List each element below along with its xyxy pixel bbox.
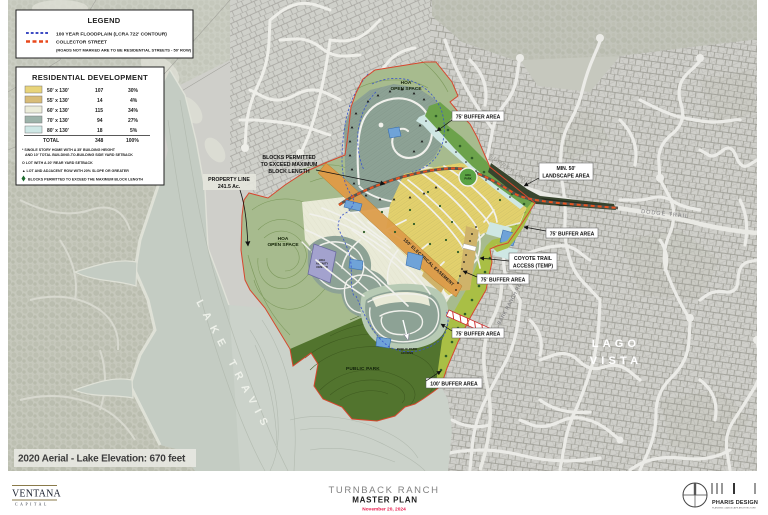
svg-text:PARK: PARK bbox=[464, 177, 471, 181]
svg-text:60' x 130': 60' x 130' bbox=[47, 108, 69, 114]
svg-text:PROPERTY LINE: PROPERTY LINE bbox=[208, 177, 250, 183]
svg-text:14: 14 bbox=[97, 98, 103, 104]
svg-text:LANDSCAPE AREA: LANDSCAPE AREA bbox=[542, 174, 590, 180]
svg-text:107: 107 bbox=[95, 88, 104, 94]
svg-text:AND 10' TOTAL BUILDING-TO-BUIL: AND 10' TOTAL BUILDING-TO-BUILDING SIDE … bbox=[25, 153, 133, 157]
svg-text:BLOCKS PERMITTED: BLOCKS PERMITTED bbox=[262, 155, 316, 161]
svg-text:PUBLIC PARK: PUBLIC PARK bbox=[346, 366, 380, 371]
svg-text:80' x 130': 80' x 130' bbox=[47, 128, 69, 134]
svg-text:TOTAL: TOTAL bbox=[43, 138, 59, 144]
svg-text:COYOTE TRAIL: COYOTE TRAIL bbox=[514, 256, 552, 262]
svg-text:55' x 130': 55' x 130' bbox=[47, 98, 69, 104]
svg-text:RESIDENTIAL DEVELOPMENT: RESIDENTIAL DEVELOPMENT bbox=[32, 73, 148, 82]
svg-text:ACCESS (TEMP): ACCESS (TEMP) bbox=[513, 264, 553, 270]
svg-text:LEGEND: LEGEND bbox=[87, 16, 120, 25]
svg-text:CAPITAL: CAPITAL bbox=[15, 503, 49, 507]
svg-text:4%: 4% bbox=[130, 98, 138, 104]
svg-text:75' BUFFER AREA: 75' BUFFER AREA bbox=[550, 231, 595, 237]
svg-text:2020 Aerial - Lake Elevation:: 2020 Aerial - Lake Elevation: 670 feet bbox=[18, 454, 186, 465]
svg-text:OPEN SPACE: OPEN SPACE bbox=[267, 242, 299, 248]
svg-text:70' x 130': 70' x 130' bbox=[47, 118, 69, 124]
svg-text:348: 348 bbox=[95, 138, 104, 144]
svg-text:HOA: HOA bbox=[465, 173, 471, 177]
svg-text:MASTER PLAN: MASTER PLAN bbox=[352, 496, 417, 505]
svg-text:MIN. 50': MIN. 50' bbox=[556, 166, 575, 172]
svg-text:November 20, 2024: November 20, 2024 bbox=[362, 507, 406, 513]
svg-text:241.5 Ac.: 241.5 Ac. bbox=[218, 184, 241, 190]
svg-text:ACCESS: ACCESS bbox=[401, 351, 414, 355]
svg-text:* SINGLE STORY HOME WITH A 35': * SINGLE STORY HOME WITH A 35' BUILDING … bbox=[22, 148, 116, 152]
svg-text:TURNBACK RANCH: TURNBACK RANCH bbox=[328, 485, 439, 496]
svg-text:34%: 34% bbox=[128, 108, 139, 114]
svg-text:BLOCK LENGTH: BLOCK LENGTH bbox=[268, 169, 309, 175]
svg-text:100 YEAR FLOODPLAIN (LCRA 722': 100 YEAR FLOODPLAIN (LCRA 722' CONTOUR) bbox=[56, 32, 167, 38]
svg-text:75' BUFFER AREA: 75' BUFFER AREA bbox=[481, 277, 526, 283]
svg-text:100%: 100% bbox=[126, 138, 139, 144]
svg-text:TO EXCEED MAXIMUM: TO EXCEED MAXIMUM bbox=[261, 162, 318, 168]
svg-text:115: 115 bbox=[95, 108, 103, 114]
svg-text:30%: 30% bbox=[128, 88, 139, 94]
svg-text:75' BUFFER AREA: 75' BUFFER AREA bbox=[456, 331, 501, 337]
svg-text:75' BUFFER AREA: 75' BUFFER AREA bbox=[456, 114, 501, 120]
svg-text:27%: 27% bbox=[128, 118, 139, 124]
svg-text:HOA: HOA bbox=[278, 236, 289, 242]
svg-text:5%: 5% bbox=[130, 128, 138, 134]
svg-text:(ROADS NOT MARKED ARE TO BE RE: (ROADS NOT MARKED ARE TO BE RESIDENTIAL … bbox=[56, 48, 192, 53]
svg-text:VENTANA: VENTANA bbox=[12, 489, 62, 500]
svg-text:BLOCKS PERMITTED TO EXCEED THE: BLOCKS PERMITTED TO EXCEED THE MAXIMUM B… bbox=[28, 178, 143, 182]
svg-text:100' BUFFER AREA: 100' BUFFER AREA bbox=[430, 381, 478, 387]
svg-text:18: 18 bbox=[97, 128, 103, 134]
svg-text:PHARIS DESIGN: PHARIS DESIGN bbox=[712, 500, 758, 506]
svg-text:▲ LOT AND ADJACENT ROW WITH 20: ▲ LOT AND ADJACENT ROW WITH 20% SLOPE OR… bbox=[22, 169, 129, 173]
svg-text:O LOT WITH A 20' REAR YARD SET: O LOT WITH A 20' REAR YARD SETBACK bbox=[22, 161, 93, 165]
svg-text:OPEN SPACE: OPEN SPACE bbox=[390, 86, 422, 92]
svg-text:50' x 130': 50' x 130' bbox=[47, 88, 69, 94]
svg-text:VISTA: VISTA bbox=[590, 355, 643, 367]
svg-text:94: 94 bbox=[97, 118, 103, 124]
svg-text:PLANNING | LANDSCAPE ARCHITECT: PLANNING | LANDSCAPE ARCHITECTURE bbox=[712, 507, 756, 510]
svg-text:LAGO: LAGO bbox=[592, 338, 641, 350]
svg-text:HOA: HOA bbox=[401, 80, 412, 86]
svg-text:COLLECTOR STREET: COLLECTOR STREET bbox=[56, 40, 107, 46]
